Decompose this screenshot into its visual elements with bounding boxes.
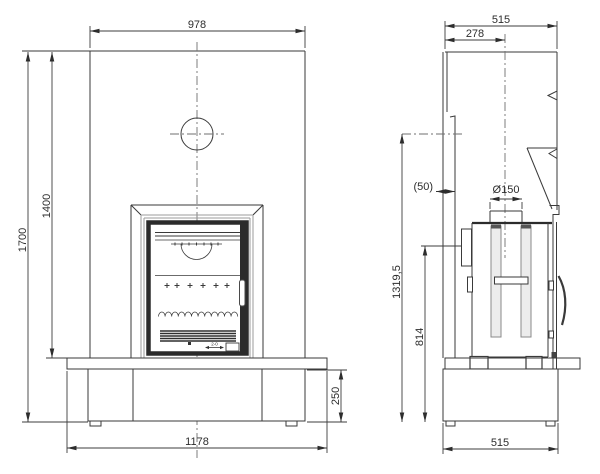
dim-front-breast-height: 1400	[41, 52, 67, 358]
dim-flue-center-offset: 278	[445, 28, 505, 40]
body-crossbar	[495, 277, 529, 284]
door-handle-side	[559, 276, 566, 325]
front-view: 978 1700 1400	[17, 19, 347, 458]
stove-body-side	[462, 215, 566, 370]
hearth-slab-side	[445, 358, 580, 369]
dim-label-278: 278	[466, 28, 484, 40]
flue-pipe	[490, 211, 522, 223]
duct-cap-rear	[491, 225, 501, 229]
dim-front-overall-height: 1700	[17, 52, 29, 422]
door-latch-side	[549, 281, 554, 290]
dim-label-978: 978	[188, 19, 206, 31]
door-hinge-side	[549, 331, 554, 338]
dim-depth-top: 515	[445, 14, 557, 49]
plinth-foot-left	[90, 421, 101, 426]
drawing-page: 978 1700 1400	[0, 0, 600, 474]
dim-label-250: 250	[330, 387, 342, 405]
plinth-foot-right	[286, 421, 297, 426]
dim-base-depth: 515	[443, 423, 558, 454]
drawing-canvas: 978 1700 1400	[0, 0, 600, 474]
deflector-bracket	[550, 206, 560, 223]
duct-cap-front	[521, 225, 531, 229]
dim-front-width: 978	[90, 19, 305, 48]
dim-label-515-bottom: 515	[491, 437, 509, 449]
hearth-slab	[67, 358, 327, 369]
dim-label-814: 814	[414, 328, 426, 346]
stove-door: 2-0	[149, 223, 249, 354]
airflow-arrow-lower	[549, 149, 557, 159]
plinth-base-side	[443, 369, 558, 426]
plinth-base	[88, 369, 305, 426]
rear-wall	[443, 52, 455, 358]
dim-wall-clearance: (50)	[413, 181, 455, 193]
door-bottom-dot	[188, 342, 191, 345]
dim-label-1178: 1178	[185, 436, 209, 448]
side-chase-outline	[445, 52, 559, 222]
rear-connector	[468, 277, 473, 292]
dim-label-515-top: 515	[492, 14, 510, 26]
dim-label-d150: Ø150	[493, 184, 520, 196]
dim-flue-diameter: Ø150	[490, 184, 522, 209]
door-micro-label: 2-0	[211, 342, 218, 347]
handle-base-mark	[552, 352, 557, 358]
dim-label-50: (50)	[413, 181, 433, 193]
deflector-slope	[527, 148, 552, 209]
dim-label-1319-5: 1319,5	[391, 265, 403, 299]
dim-label-1400: 1400	[41, 194, 53, 218]
door-handle	[240, 280, 246, 306]
plinth-foot-rear	[446, 421, 455, 426]
ash-lip	[226, 343, 239, 351]
plinth-foot-front	[546, 421, 555, 426]
dim-label-1700: 1700	[17, 228, 29, 252]
side-view: 515 278 1319,5 814 (50)	[391, 14, 580, 454]
airflow-arrow-upper	[548, 91, 557, 100]
rear-heat-shield	[462, 229, 472, 266]
